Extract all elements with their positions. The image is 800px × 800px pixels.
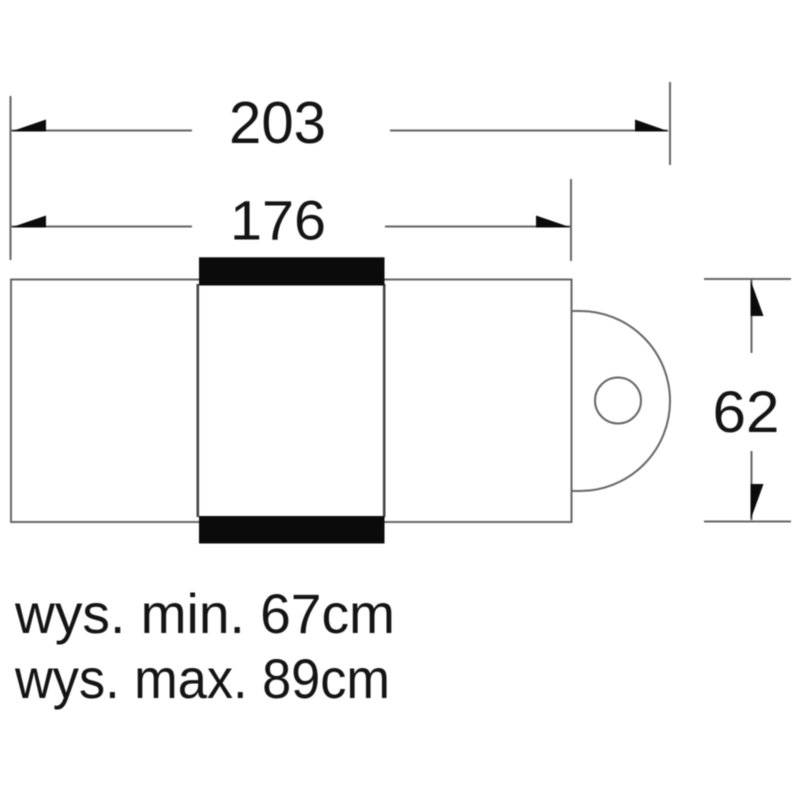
svg-text:wys. max. 89cm: wys. max. 89cm (14, 647, 390, 710)
svg-text:176: 176 (230, 189, 326, 252)
svg-text:wys. min. 67cm: wys. min. 67cm (14, 582, 395, 645)
svg-text:203: 203 (229, 90, 326, 156)
svg-text:62: 62 (713, 380, 780, 445)
